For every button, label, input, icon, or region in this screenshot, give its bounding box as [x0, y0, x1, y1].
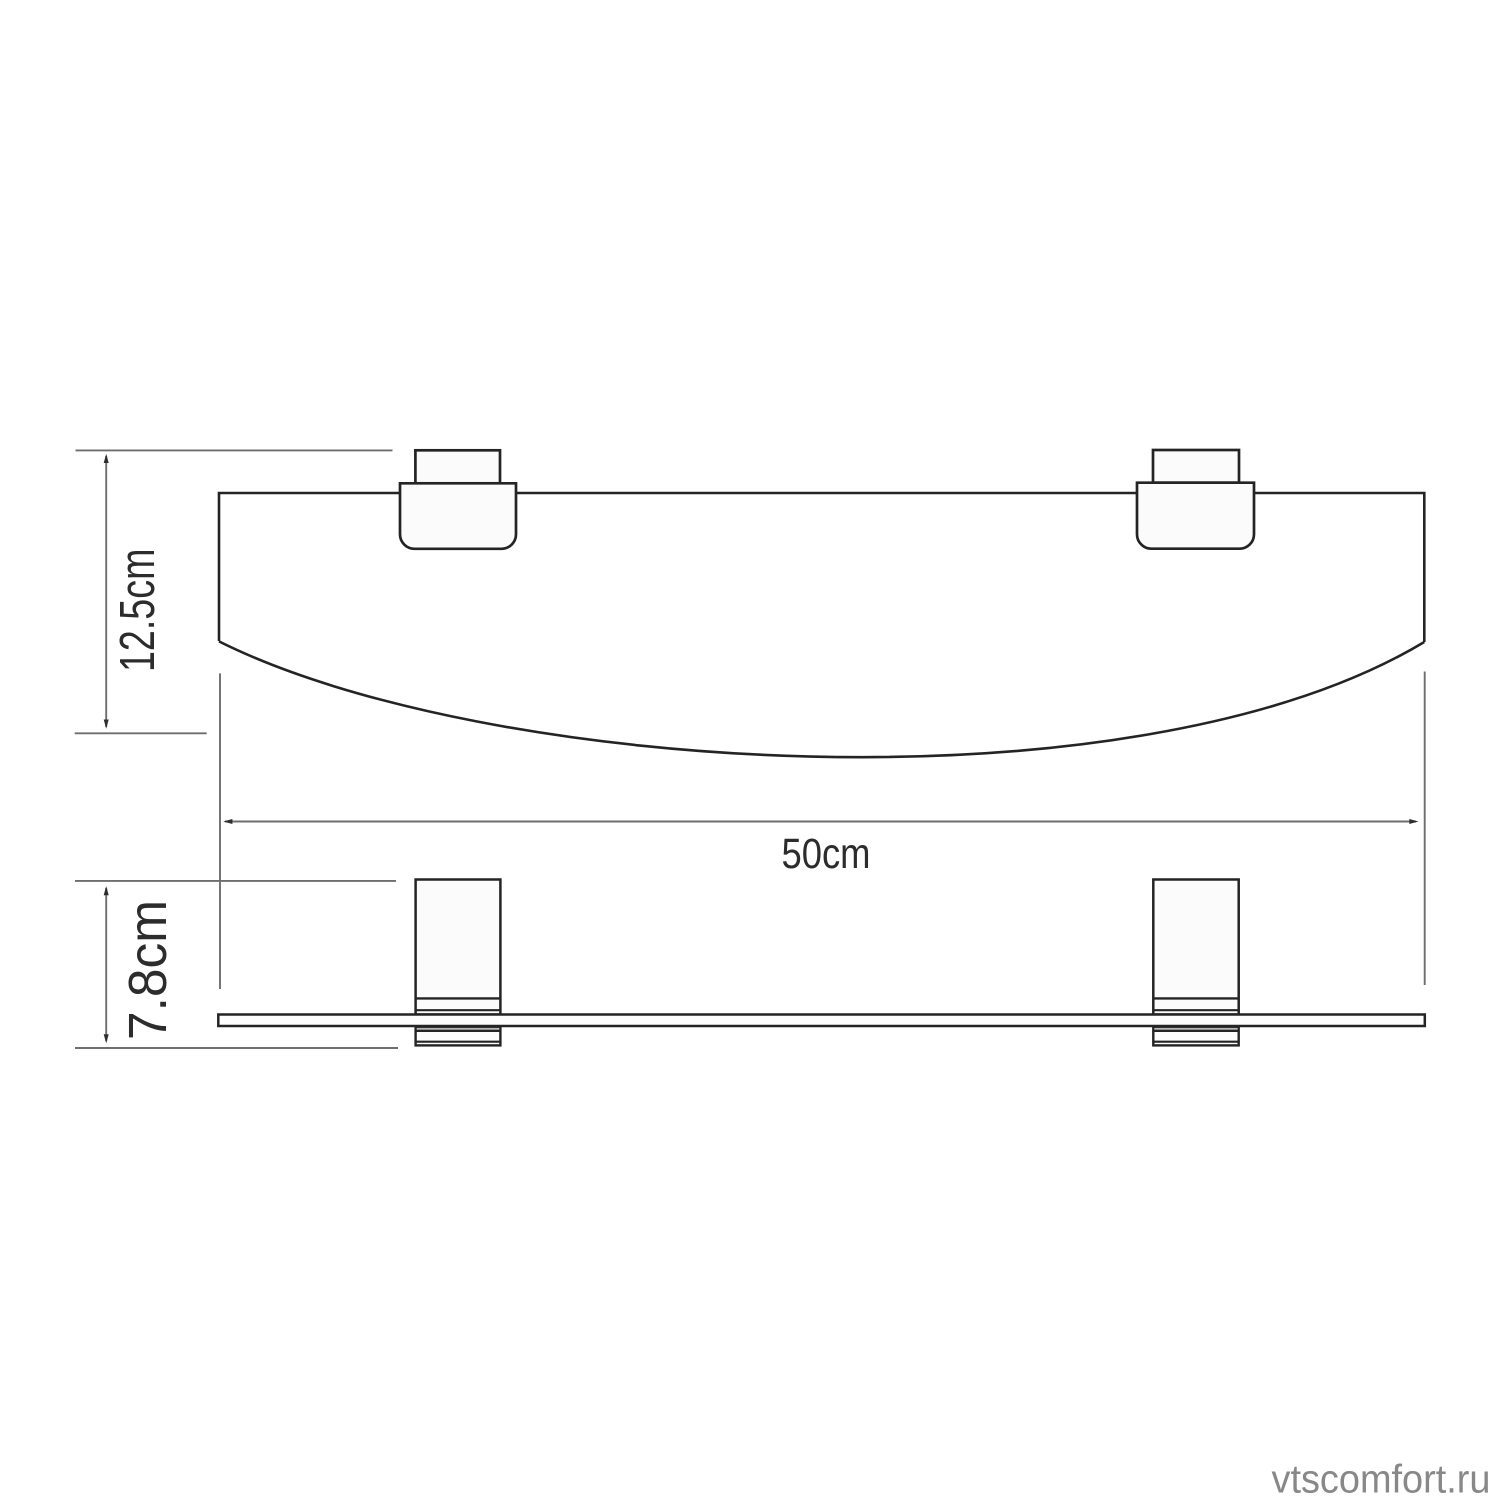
svg-text:50cm: 50cm [782, 830, 871, 878]
svg-text:12.5cm: 12.5cm [111, 549, 165, 673]
svg-text:vtscomfort.ru: vtscomfort.ru [1272, 1458, 1491, 1500]
svg-text:7.8cm: 7.8cm [118, 900, 178, 1040]
